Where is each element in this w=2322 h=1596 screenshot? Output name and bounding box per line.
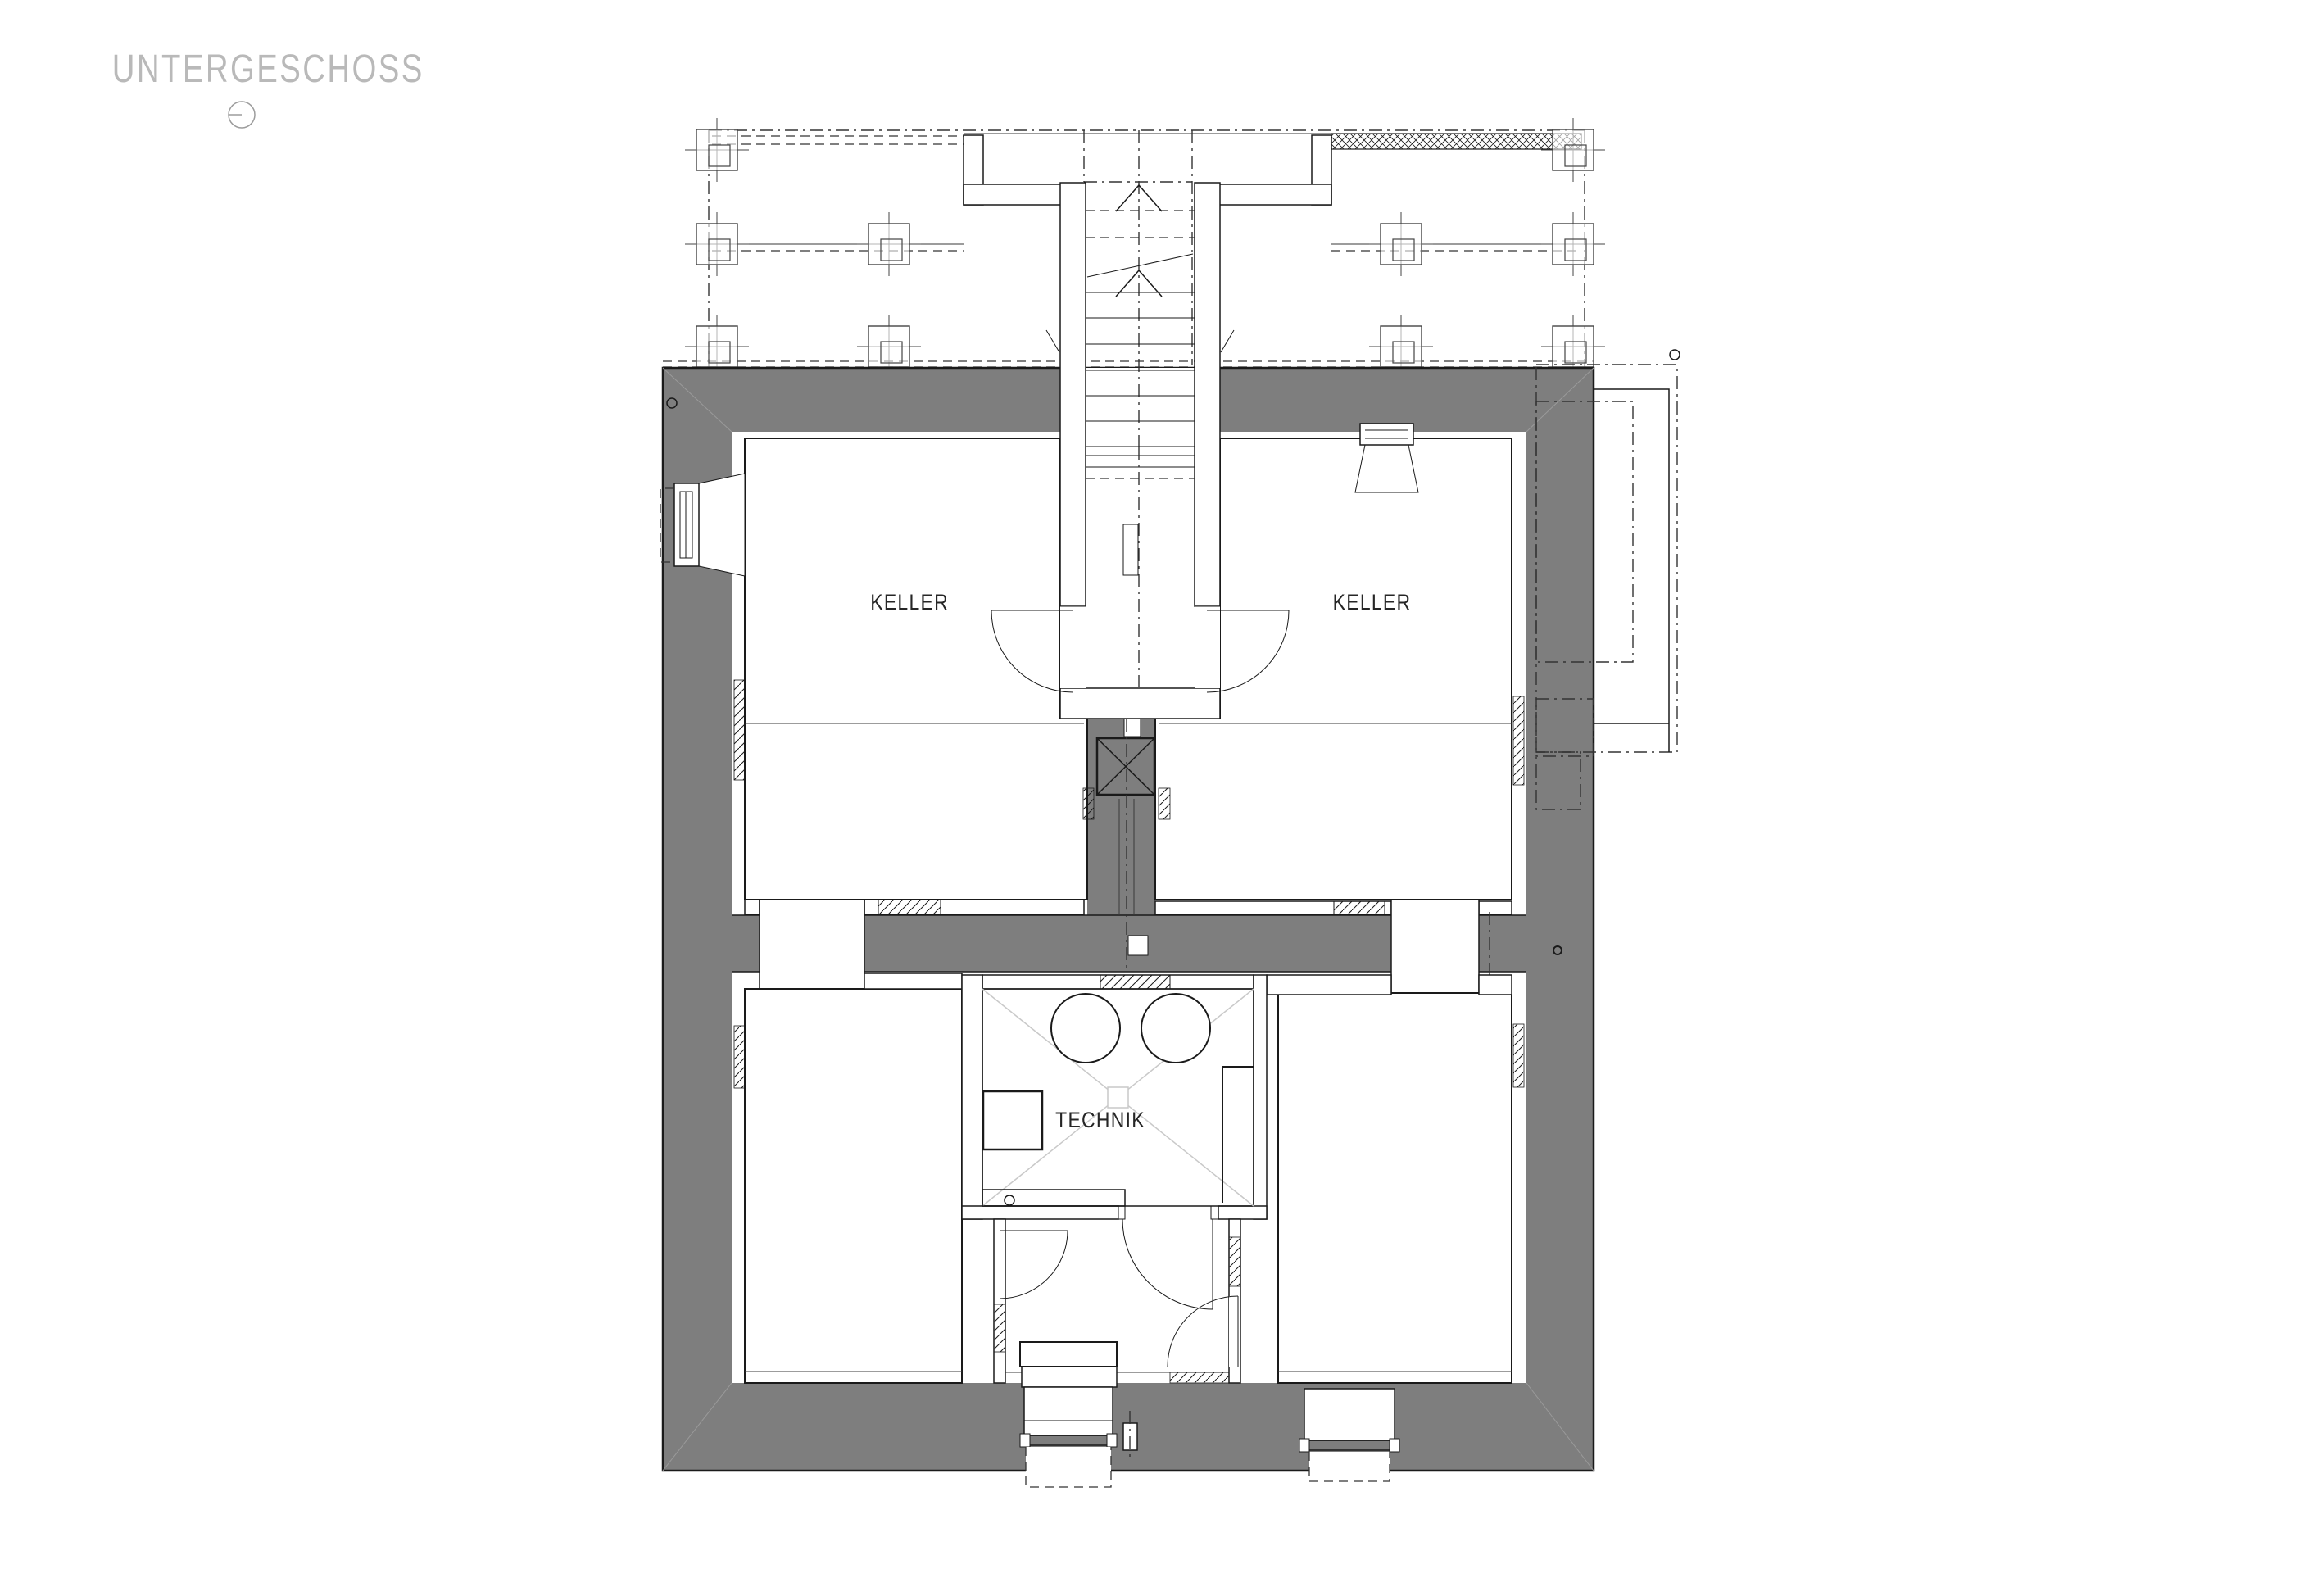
passage-left bbox=[760, 900, 864, 989]
light-well-bottom-right bbox=[1299, 1389, 1399, 1481]
label-keller-left: KELLER bbox=[870, 590, 949, 614]
tank-icon bbox=[1051, 994, 1120, 1063]
tank-icon bbox=[1141, 994, 1210, 1063]
light-well-bottom-left bbox=[1020, 1342, 1117, 1487]
label-technik: TECHNIK bbox=[1055, 1108, 1145, 1132]
floor-drain-icon bbox=[1005, 1195, 1014, 1205]
terrace-overlay-above bbox=[663, 118, 1605, 379]
column-grid bbox=[685, 118, 1605, 379]
label-keller-right: KELLER bbox=[1333, 590, 1412, 614]
equipment-l-wall bbox=[1222, 1067, 1254, 1203]
room-lower-right bbox=[1278, 993, 1512, 1383]
room-keller-left bbox=[745, 438, 1087, 900]
title-text: UNTERGESCHOSS bbox=[112, 48, 424, 91]
floor-plan-page: KELLER KELLER TECHNIK UNTERGESCHOSS bbox=[0, 0, 2322, 1596]
floor-plan-drawing: KELLER KELLER TECHNIK UNTERGESCHOSS bbox=[0, 0, 2322, 1596]
room-lower-left bbox=[745, 989, 962, 1383]
window-top-wall bbox=[1355, 424, 1418, 492]
axis-marker-right-icon bbox=[1670, 350, 1680, 360]
drawing-title: UNTERGESCHOSS bbox=[112, 48, 424, 128]
stair-landing bbox=[1086, 447, 1195, 687]
equipment-box bbox=[983, 1091, 1042, 1149]
passage-right bbox=[1391, 900, 1479, 995]
lower-rooms bbox=[745, 973, 1512, 1383]
counter bbox=[982, 1190, 1125, 1206]
room-technik bbox=[962, 975, 1267, 1309]
